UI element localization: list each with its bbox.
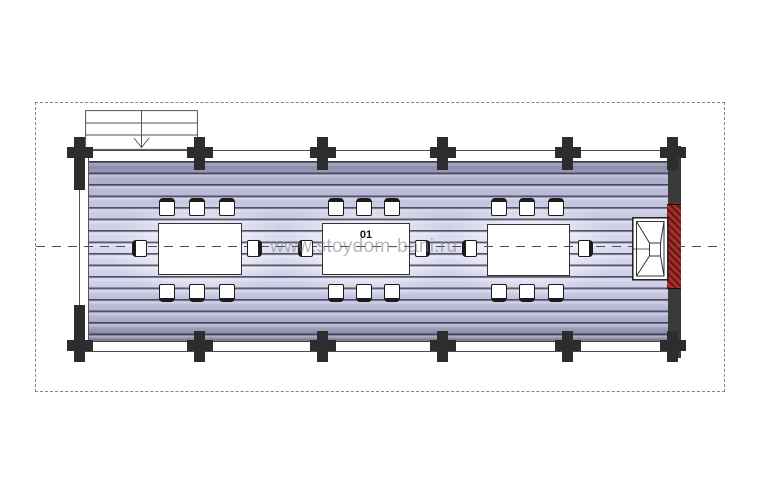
bottom-wall [80, 351, 681, 352]
chair [132, 240, 147, 257]
chair [189, 284, 205, 302]
chair [519, 198, 535, 216]
dining-table [487, 224, 570, 276]
chair [548, 284, 564, 302]
column [317, 331, 328, 362]
chair [462, 240, 477, 257]
chair [491, 198, 507, 216]
chair [328, 284, 344, 302]
chair [491, 284, 507, 302]
chair [578, 240, 593, 257]
chair [356, 198, 372, 216]
chair [247, 240, 262, 257]
chair [159, 284, 175, 302]
column [317, 137, 328, 170]
dining-table [158, 223, 242, 275]
floor-plan-canvas: 01 www.stoydom-bani.ru [0, 0, 760, 500]
column [437, 137, 448, 170]
chair [384, 198, 400, 216]
watermark-text: www.stoydom-bani.ru [270, 236, 457, 258]
chair [328, 198, 344, 216]
chair [159, 198, 175, 216]
staircase [85, 110, 198, 150]
fireplace-stove [632, 216, 669, 282]
column [437, 331, 448, 362]
chair [519, 284, 535, 302]
column [562, 137, 573, 170]
chair [384, 284, 400, 302]
top-wall [80, 150, 681, 151]
column [74, 137, 85, 190]
column [194, 137, 205, 170]
column [667, 137, 678, 170]
chair [356, 284, 372, 302]
column [667, 331, 678, 362]
chair [219, 198, 235, 216]
column [194, 331, 205, 362]
column [74, 305, 85, 362]
chair [548, 198, 564, 216]
chair [189, 198, 205, 216]
chair [219, 284, 235, 302]
column [562, 331, 573, 362]
